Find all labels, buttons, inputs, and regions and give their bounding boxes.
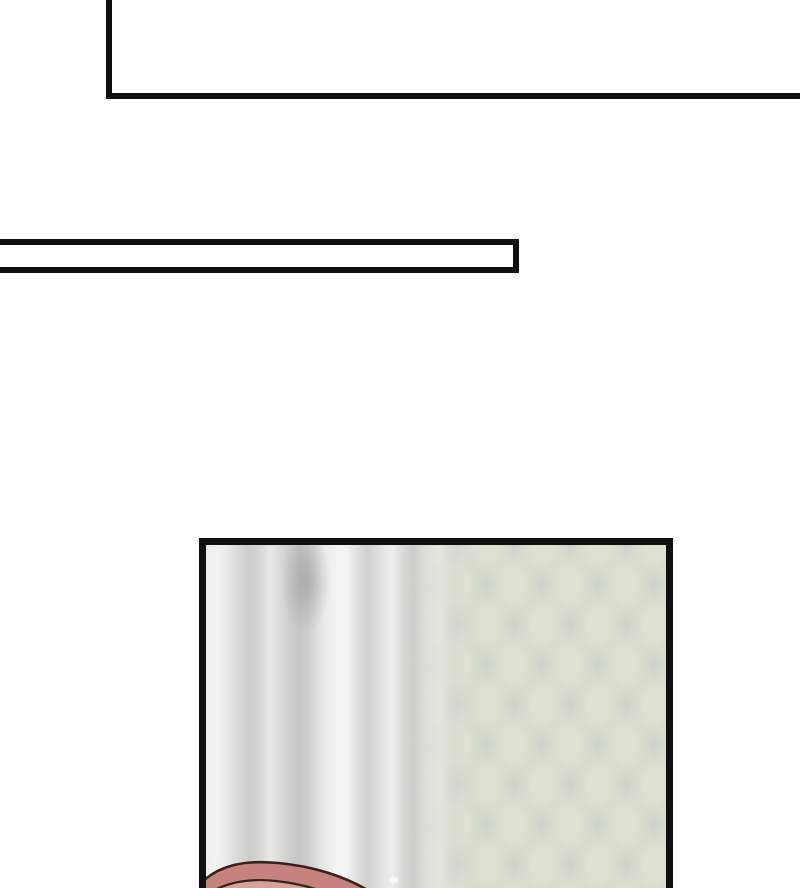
character-hair-arc	[206, 838, 496, 888]
comic-panel-strip	[0, 239, 519, 273]
comic-page	[0, 0, 800, 888]
curtain-blur	[206, 545, 491, 888]
comic-panel-top	[106, 0, 800, 99]
comic-panel-main	[199, 538, 673, 888]
highlight-dot	[390, 877, 399, 883]
